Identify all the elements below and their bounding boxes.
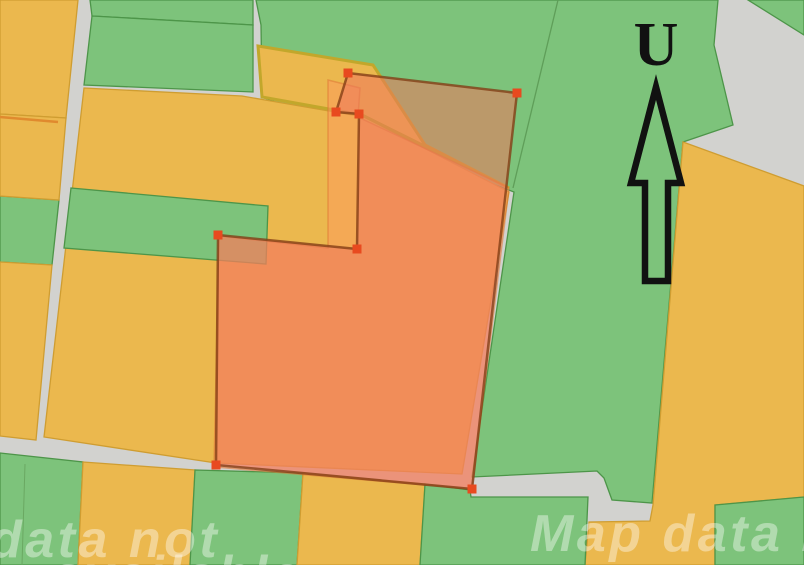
watermark-text: available [52, 546, 303, 565]
north-label: U [634, 11, 679, 79]
map-canvas[interactable]: U data not available Map data not [0, 0, 804, 565]
parcel-yellow-topleft-b[interactable] [0, 114, 66, 200]
watermark-text: Map data not [530, 505, 804, 563]
selection-vertex-handle-3[interactable] [212, 461, 221, 470]
selection-vertex-handle-5[interactable] [353, 245, 362, 254]
selection-vertex-handle-6[interactable] [355, 110, 364, 119]
parcel-yellow-topleft-a[interactable] [0, 0, 78, 118]
selection-vertex-handle-2[interactable] [468, 485, 477, 494]
selection-vertex-handle-0[interactable] [344, 69, 353, 78]
selection-vertex-handle-7[interactable] [332, 108, 341, 117]
parcel-yellow-bottom-2[interactable] [297, 473, 425, 565]
parcel-green-left-strip[interactable] [0, 196, 59, 265]
selection-vertex-handle-4[interactable] [214, 231, 223, 240]
parcel-green-topleft-b[interactable] [84, 16, 253, 92]
selection-vertex-handle-1[interactable] [513, 89, 522, 98]
